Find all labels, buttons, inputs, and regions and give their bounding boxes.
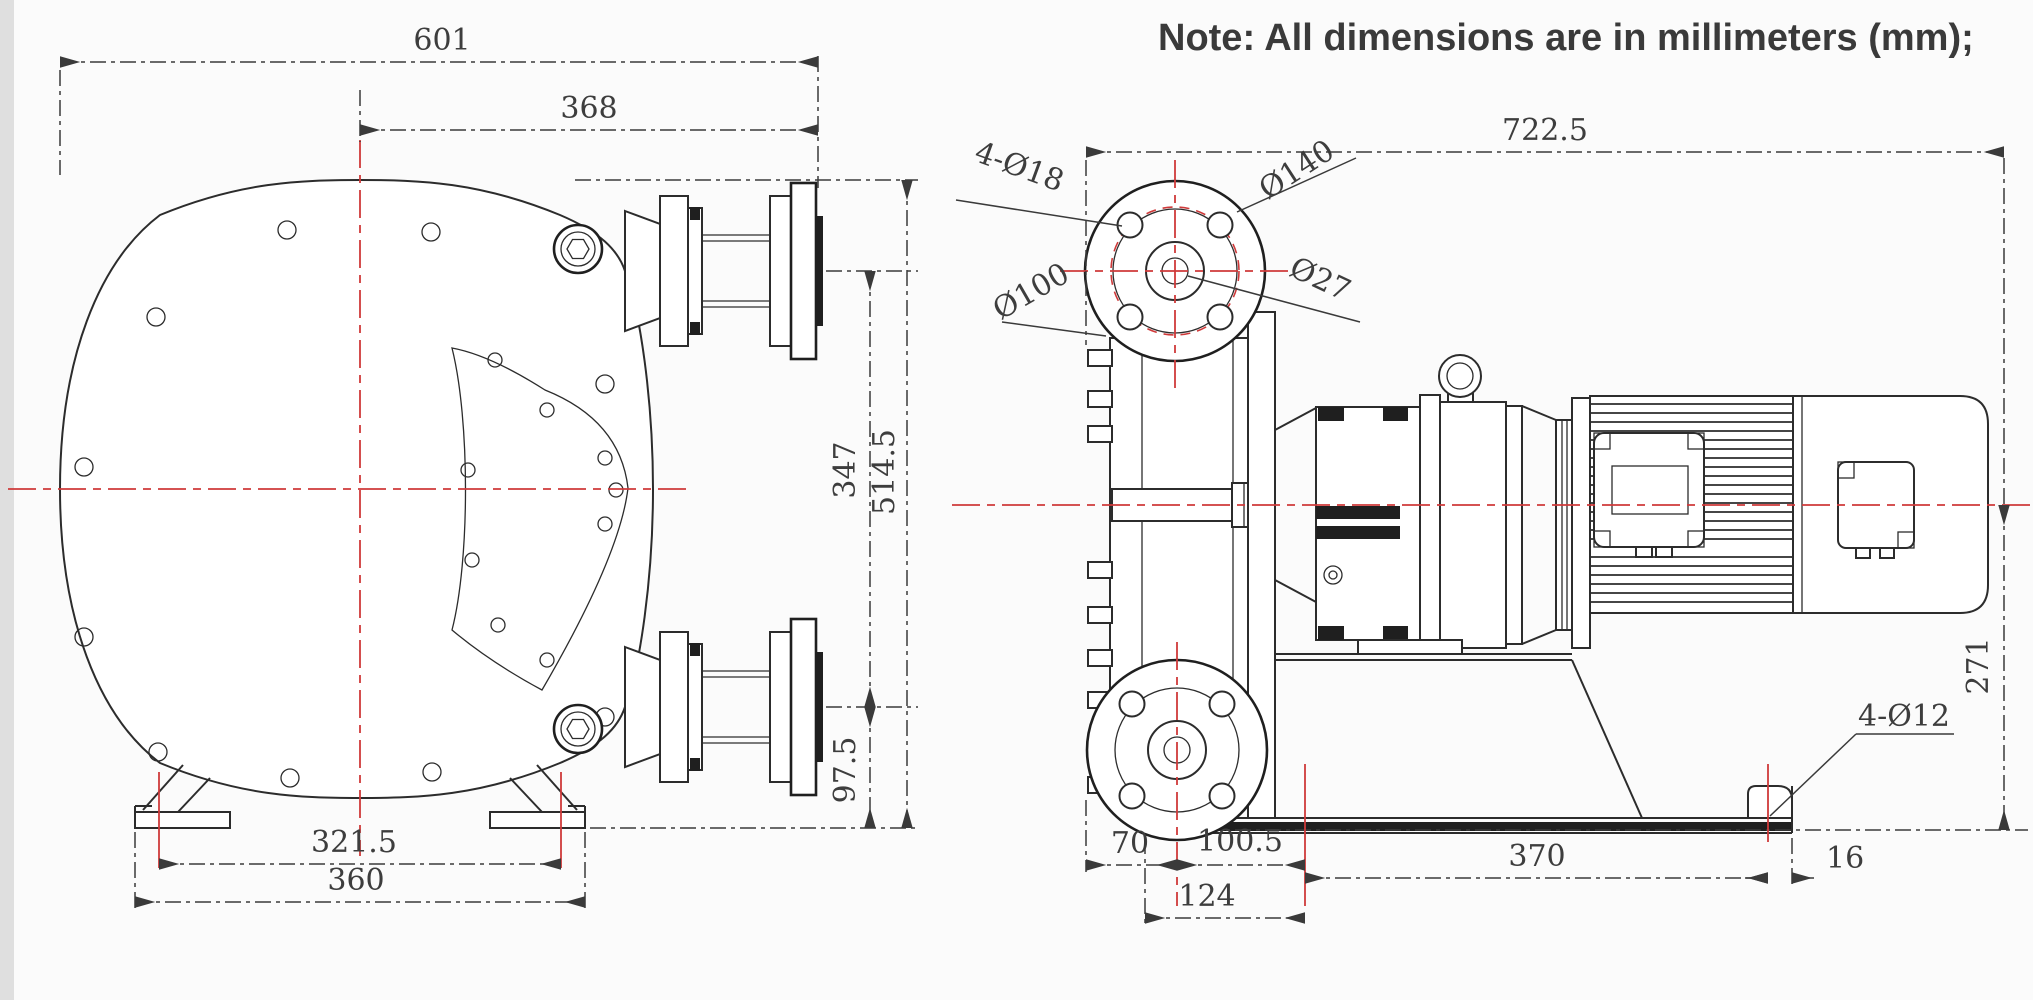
port-hex-bolt-bottom <box>554 705 602 753</box>
drawing-note: Note: All dimensions are in millimeters … <box>1158 17 1974 59</box>
dim-port-to-base: 97.5 <box>828 737 863 804</box>
dim-port-spacing: 347 <box>828 441 863 498</box>
gearbox-foot-pad <box>1358 640 1462 654</box>
port-hex-bolt-top <box>554 225 602 273</box>
drawing-canvas: 601 368 347 97.5 514.5 321.5 360 <box>0 0 2033 1000</box>
dim-edge-to-flange: 70 <box>1111 826 1149 861</box>
top-port-assembly <box>625 183 823 359</box>
engineering-drawing-page: 601 368 347 97.5 514.5 321.5 360 <box>0 0 2033 1000</box>
dim-total-length: 722.5 <box>1502 113 1588 148</box>
motor <box>1572 396 1988 648</box>
dim-total-height: 514.5 <box>867 429 902 515</box>
bottom-port-assembly <box>625 619 823 795</box>
lifting-eye-icon <box>1439 355 1481 397</box>
label-flange-bolt-circle: Ø100 <box>987 256 1075 327</box>
dim-base-width: 360 <box>327 863 384 898</box>
base-assembly <box>1145 640 2028 833</box>
scan-edge-strip <box>0 0 14 1000</box>
label-flange-bolt-holes: 4-Ø18 <box>970 135 1068 199</box>
dim-foot-hole-spacing: 321.5 <box>311 825 397 860</box>
dim-foot-to-base-end: 16 <box>1826 841 1864 876</box>
dim-total-width: 601 <box>413 23 470 58</box>
dim-foot-hole-span: 370 <box>1508 839 1565 874</box>
label-base-holes: 4-Ø12 <box>1858 699 1950 734</box>
gearbox <box>1275 355 1572 652</box>
dim-flange-to-foot-hole: 100.5 <box>1197 824 1283 859</box>
side-view: 4-Ø18 Ø140 Ø100 Ø27 4-Ø12 722.5 271 70 1… <box>952 113 2030 924</box>
label-flange-od: Ø140 <box>1253 133 1341 207</box>
front-view: 601 368 347 97.5 514.5 321.5 360 <box>8 23 918 908</box>
dim-shaft-height: 271 <box>1961 637 1996 694</box>
label-flange-bore: Ø27 <box>1284 250 1356 308</box>
dim-center-to-port-end: 368 <box>560 91 617 126</box>
dim-base-to-foot-hole: 124 <box>1178 879 1235 914</box>
